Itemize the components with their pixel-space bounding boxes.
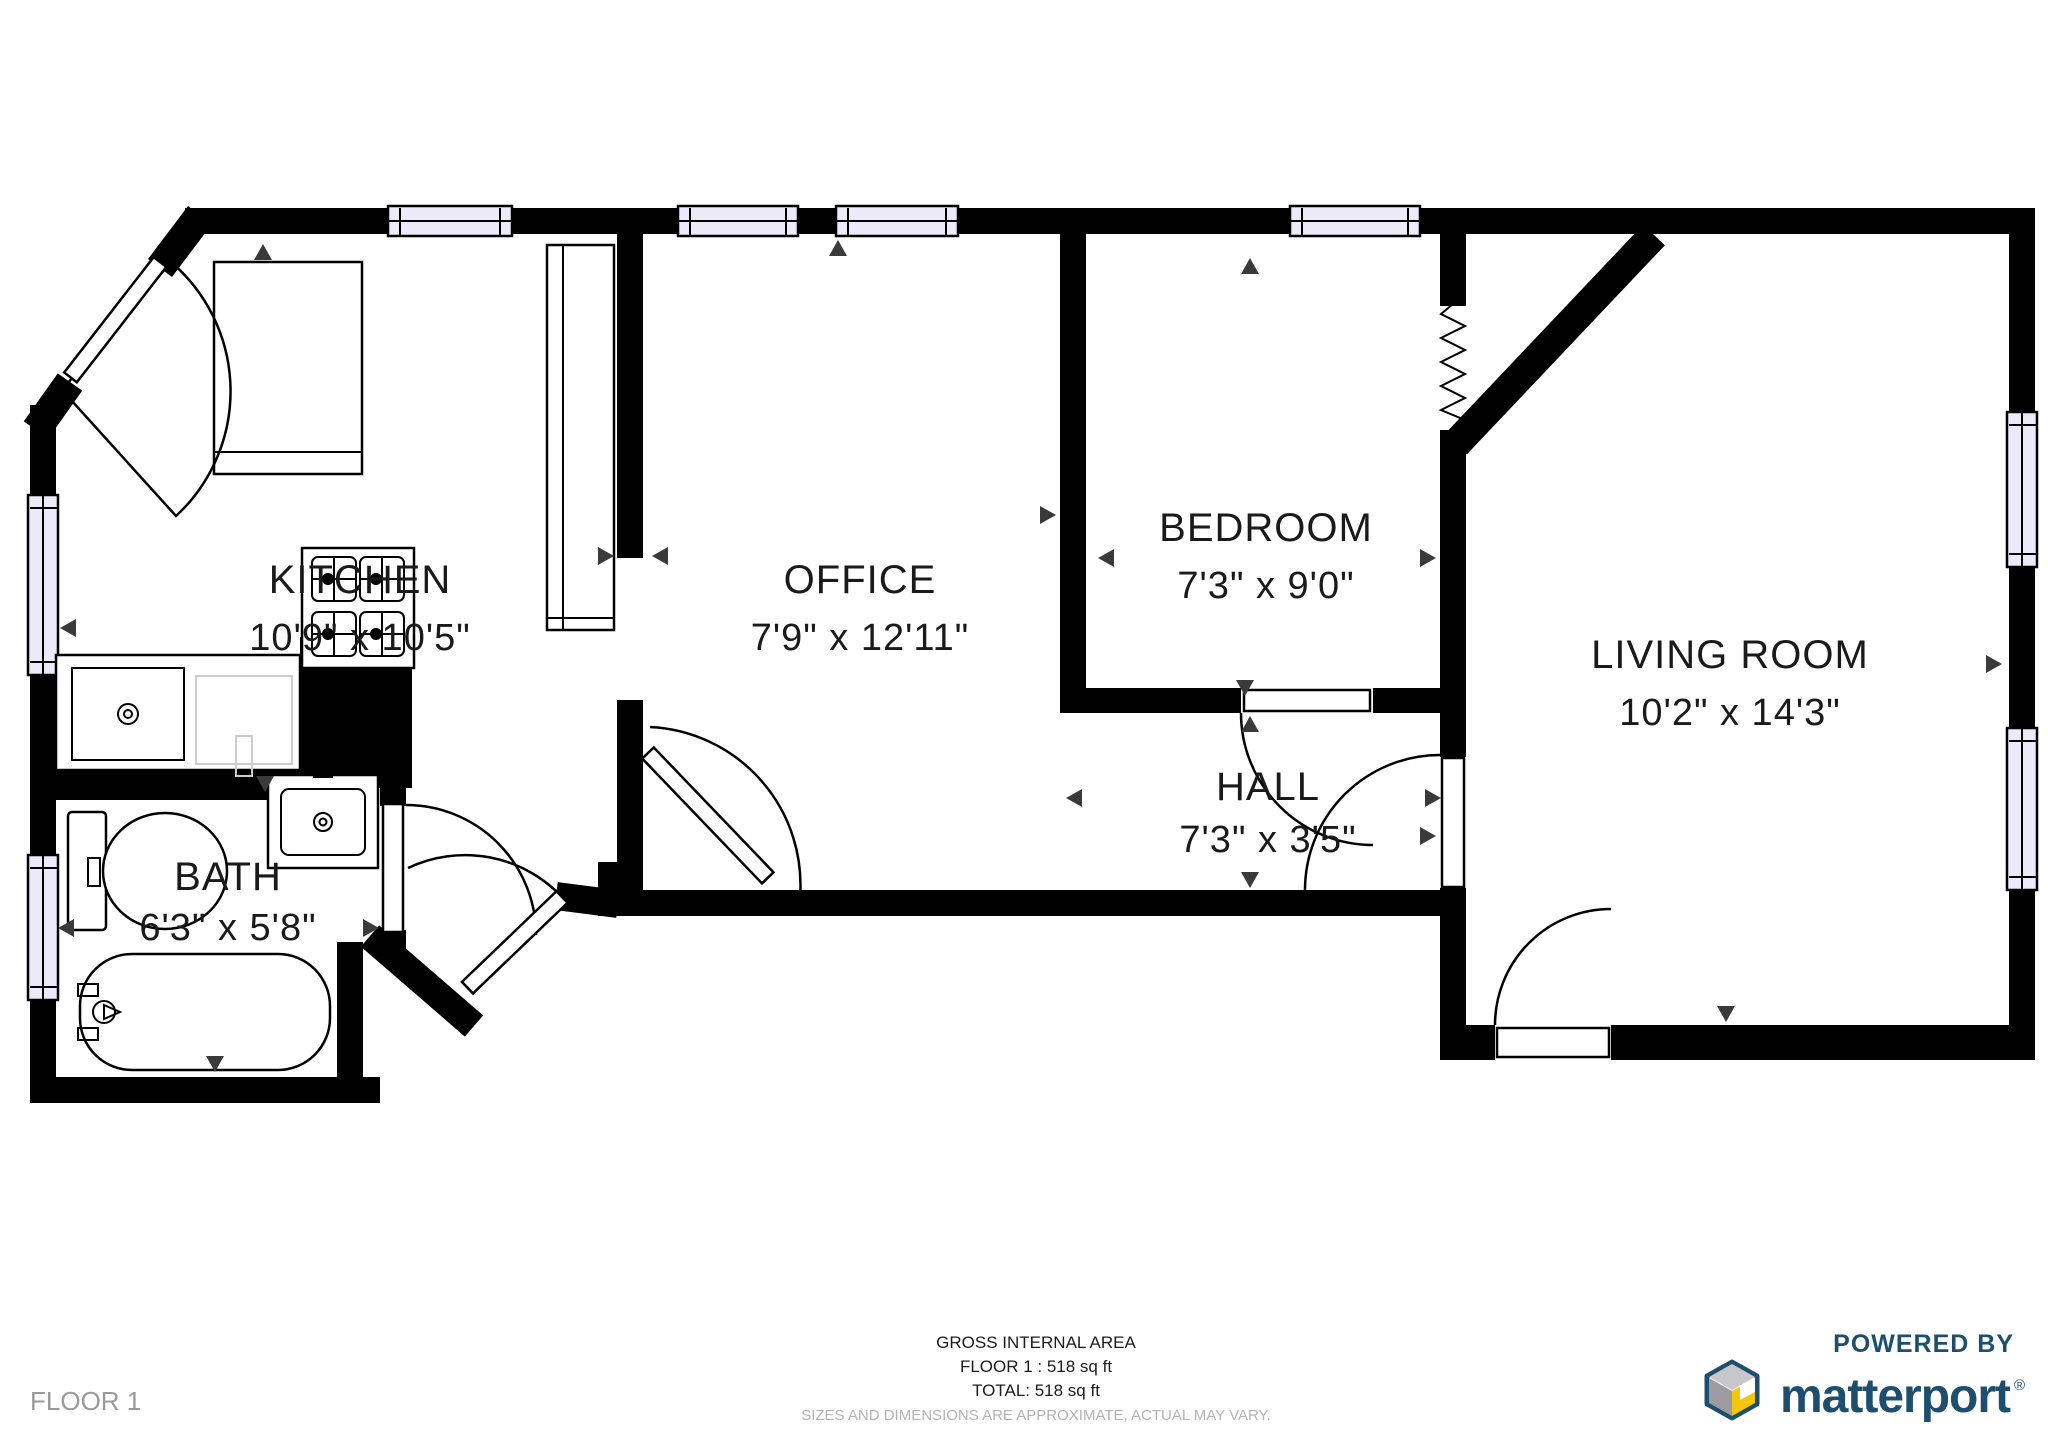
total-area-label: TOTAL: 518 sq ft (972, 1381, 1100, 1400)
room-label-bath: BATH (174, 855, 282, 899)
room-label-living-room: LIVING ROOM (1591, 633, 1869, 677)
direction-marker-icon (1241, 872, 1259, 888)
direction-marker-icon (1986, 655, 2002, 673)
powered-by-label: POWERED BY (1833, 1330, 2014, 1358)
room-label-kitchen: KITCHEN (269, 558, 452, 602)
window-icon (28, 495, 58, 675)
kitchen-sink-icon (56, 655, 300, 776)
direction-marker-icon (1420, 549, 1436, 567)
window-icon (678, 206, 798, 236)
counter-icon (547, 245, 614, 630)
door-arc-icon (62, 257, 231, 516)
gross-internal-area-label: GROSS INTERNAL AREA (936, 1333, 1136, 1352)
floor-1-label: FLOOR 1 (30, 1386, 141, 1416)
direction-marker-icon (1420, 827, 1436, 845)
floorplan-page: KITCHEN 10'9" x 10'5" OFFICE 7'9" x 12'1… (0, 0, 2048, 1448)
direction-marker-icon (60, 619, 76, 637)
room-dims-living-room: 10'2" x 14'3" (1619, 692, 1840, 734)
room-label-office: OFFICE (784, 558, 937, 602)
bathtub-icon (78, 954, 330, 1070)
window-icon (2007, 728, 2037, 890)
door-openings (1241, 686, 1611, 1062)
disclaimer-label: SIZES AND DIMENSIONS ARE APPROXIMATE, AC… (801, 1407, 1271, 1424)
room-dims-bedroom: 7'3" x 9'0" (1177, 565, 1354, 607)
bath-sink-icon (268, 760, 378, 868)
floor-area-label: FLOOR 1 : 518 sq ft (960, 1357, 1112, 1376)
room-dims-hall: 7'3" x 3'5" (1179, 819, 1356, 861)
door-arc-icon (1495, 909, 1611, 1057)
direction-marker-icon (58, 919, 74, 937)
direction-marker-icon (1717, 1006, 1735, 1022)
zigzag-opening-icon (1441, 304, 1465, 430)
door-arc-icon (642, 727, 800, 897)
direction-marker-icon (1040, 506, 1056, 524)
direction-marker-icon (829, 240, 847, 256)
window-icon (836, 206, 958, 236)
direction-marker-icon (254, 244, 272, 260)
room-label-bedroom: BEDROOM (1159, 506, 1373, 550)
direction-marker-icon (1241, 716, 1259, 732)
door-arc-icon (383, 804, 536, 935)
room-dims-bath: 6'3" x 5'8" (139, 907, 316, 949)
registered-mark: ® (2014, 1377, 2025, 1394)
room-dims-office: 7'9" x 12'11" (751, 617, 970, 659)
room-label-hall: HALL (1216, 765, 1320, 809)
room-dims-kitchen: 10'9" x 10'5" (249, 617, 470, 659)
window-icon (1290, 206, 1420, 236)
direction-marker-icon (1241, 258, 1259, 274)
matterport-cube-icon (1707, 1362, 1757, 1418)
window-icon (2007, 412, 2037, 567)
direction-marker-icon (652, 547, 668, 565)
direction-marker-icon (1098, 549, 1114, 567)
window-icon (388, 206, 512, 236)
floor-plan-canvas: KITCHEN 10'9" x 10'5" OFFICE 7'9" x 12'1… (0, 0, 2048, 1448)
wardrobe-icon (214, 262, 362, 474)
direction-marker-icon (1066, 789, 1082, 807)
matterport-logo: POWERED BY matterport ® (1707, 1330, 2025, 1423)
window-icon (28, 855, 58, 1000)
matterport-brand-label: matterport (1780, 1370, 2011, 1423)
